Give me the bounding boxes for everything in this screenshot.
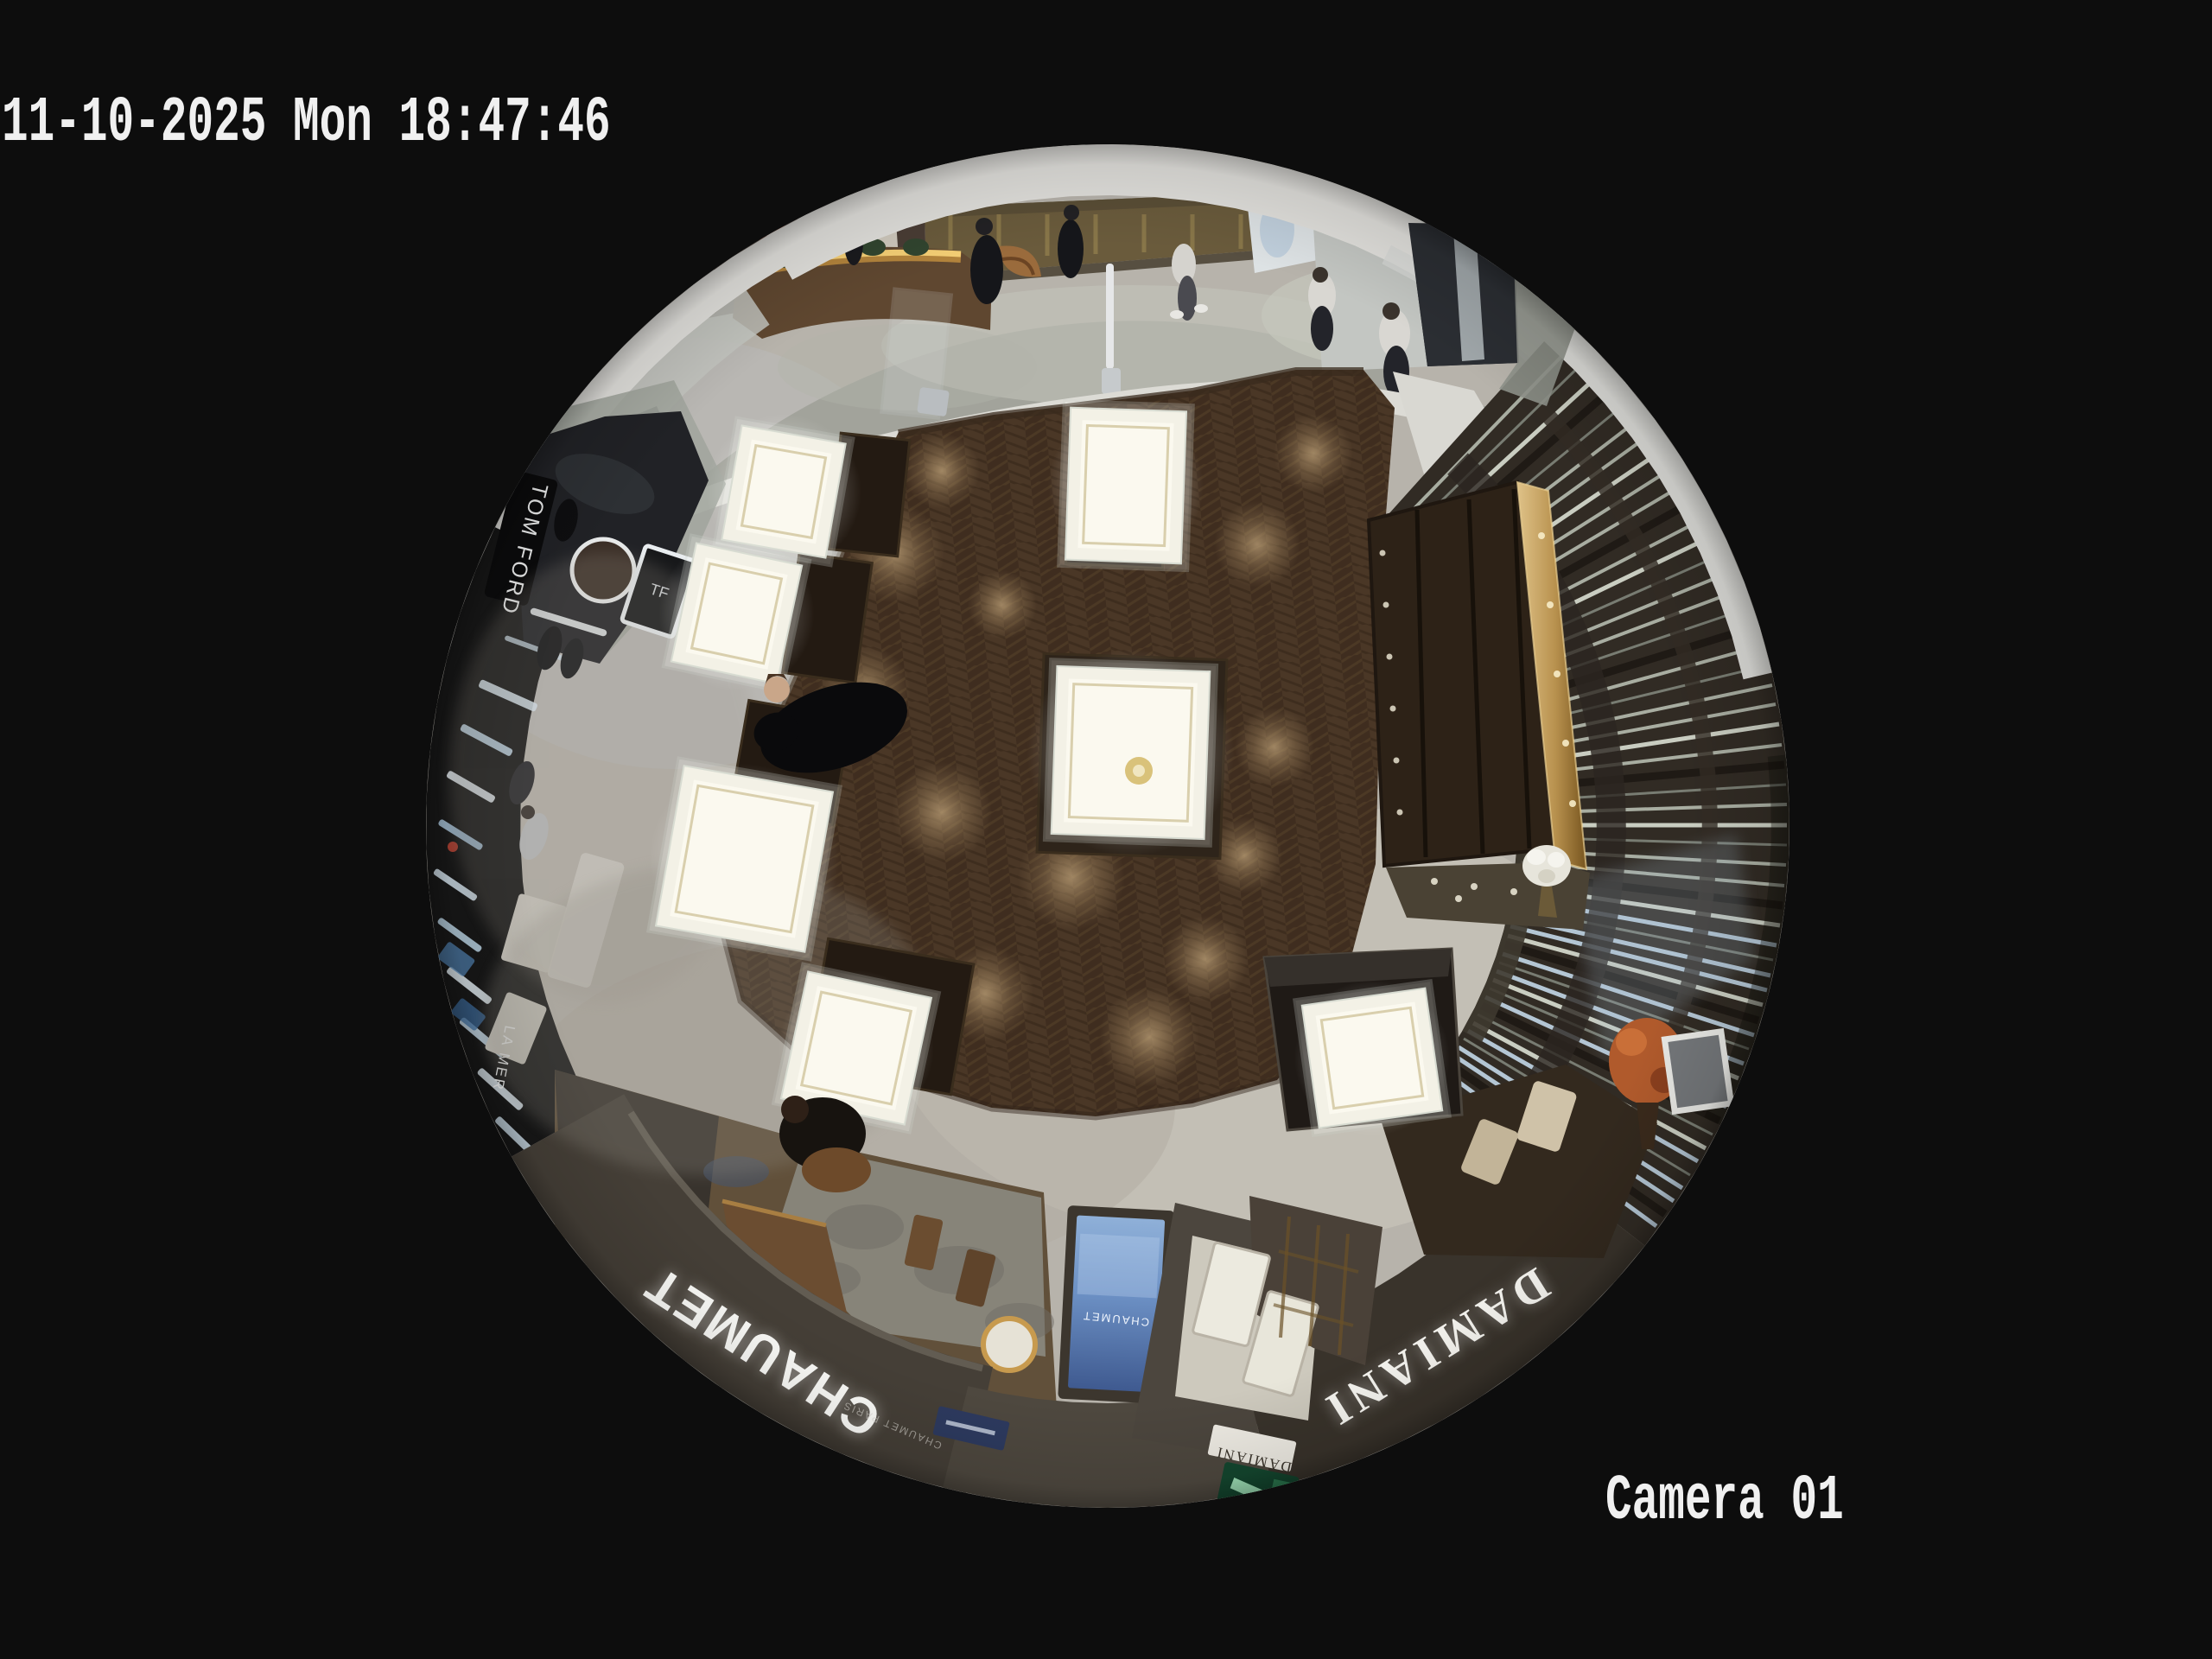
svg-text:11-10-2025 Mon 18:47:46: 11-10-2025 Mon 18:47:46 <box>2 87 611 160</box>
svg-text:Camera 01: Camera 01 <box>1605 1465 1844 1538</box>
